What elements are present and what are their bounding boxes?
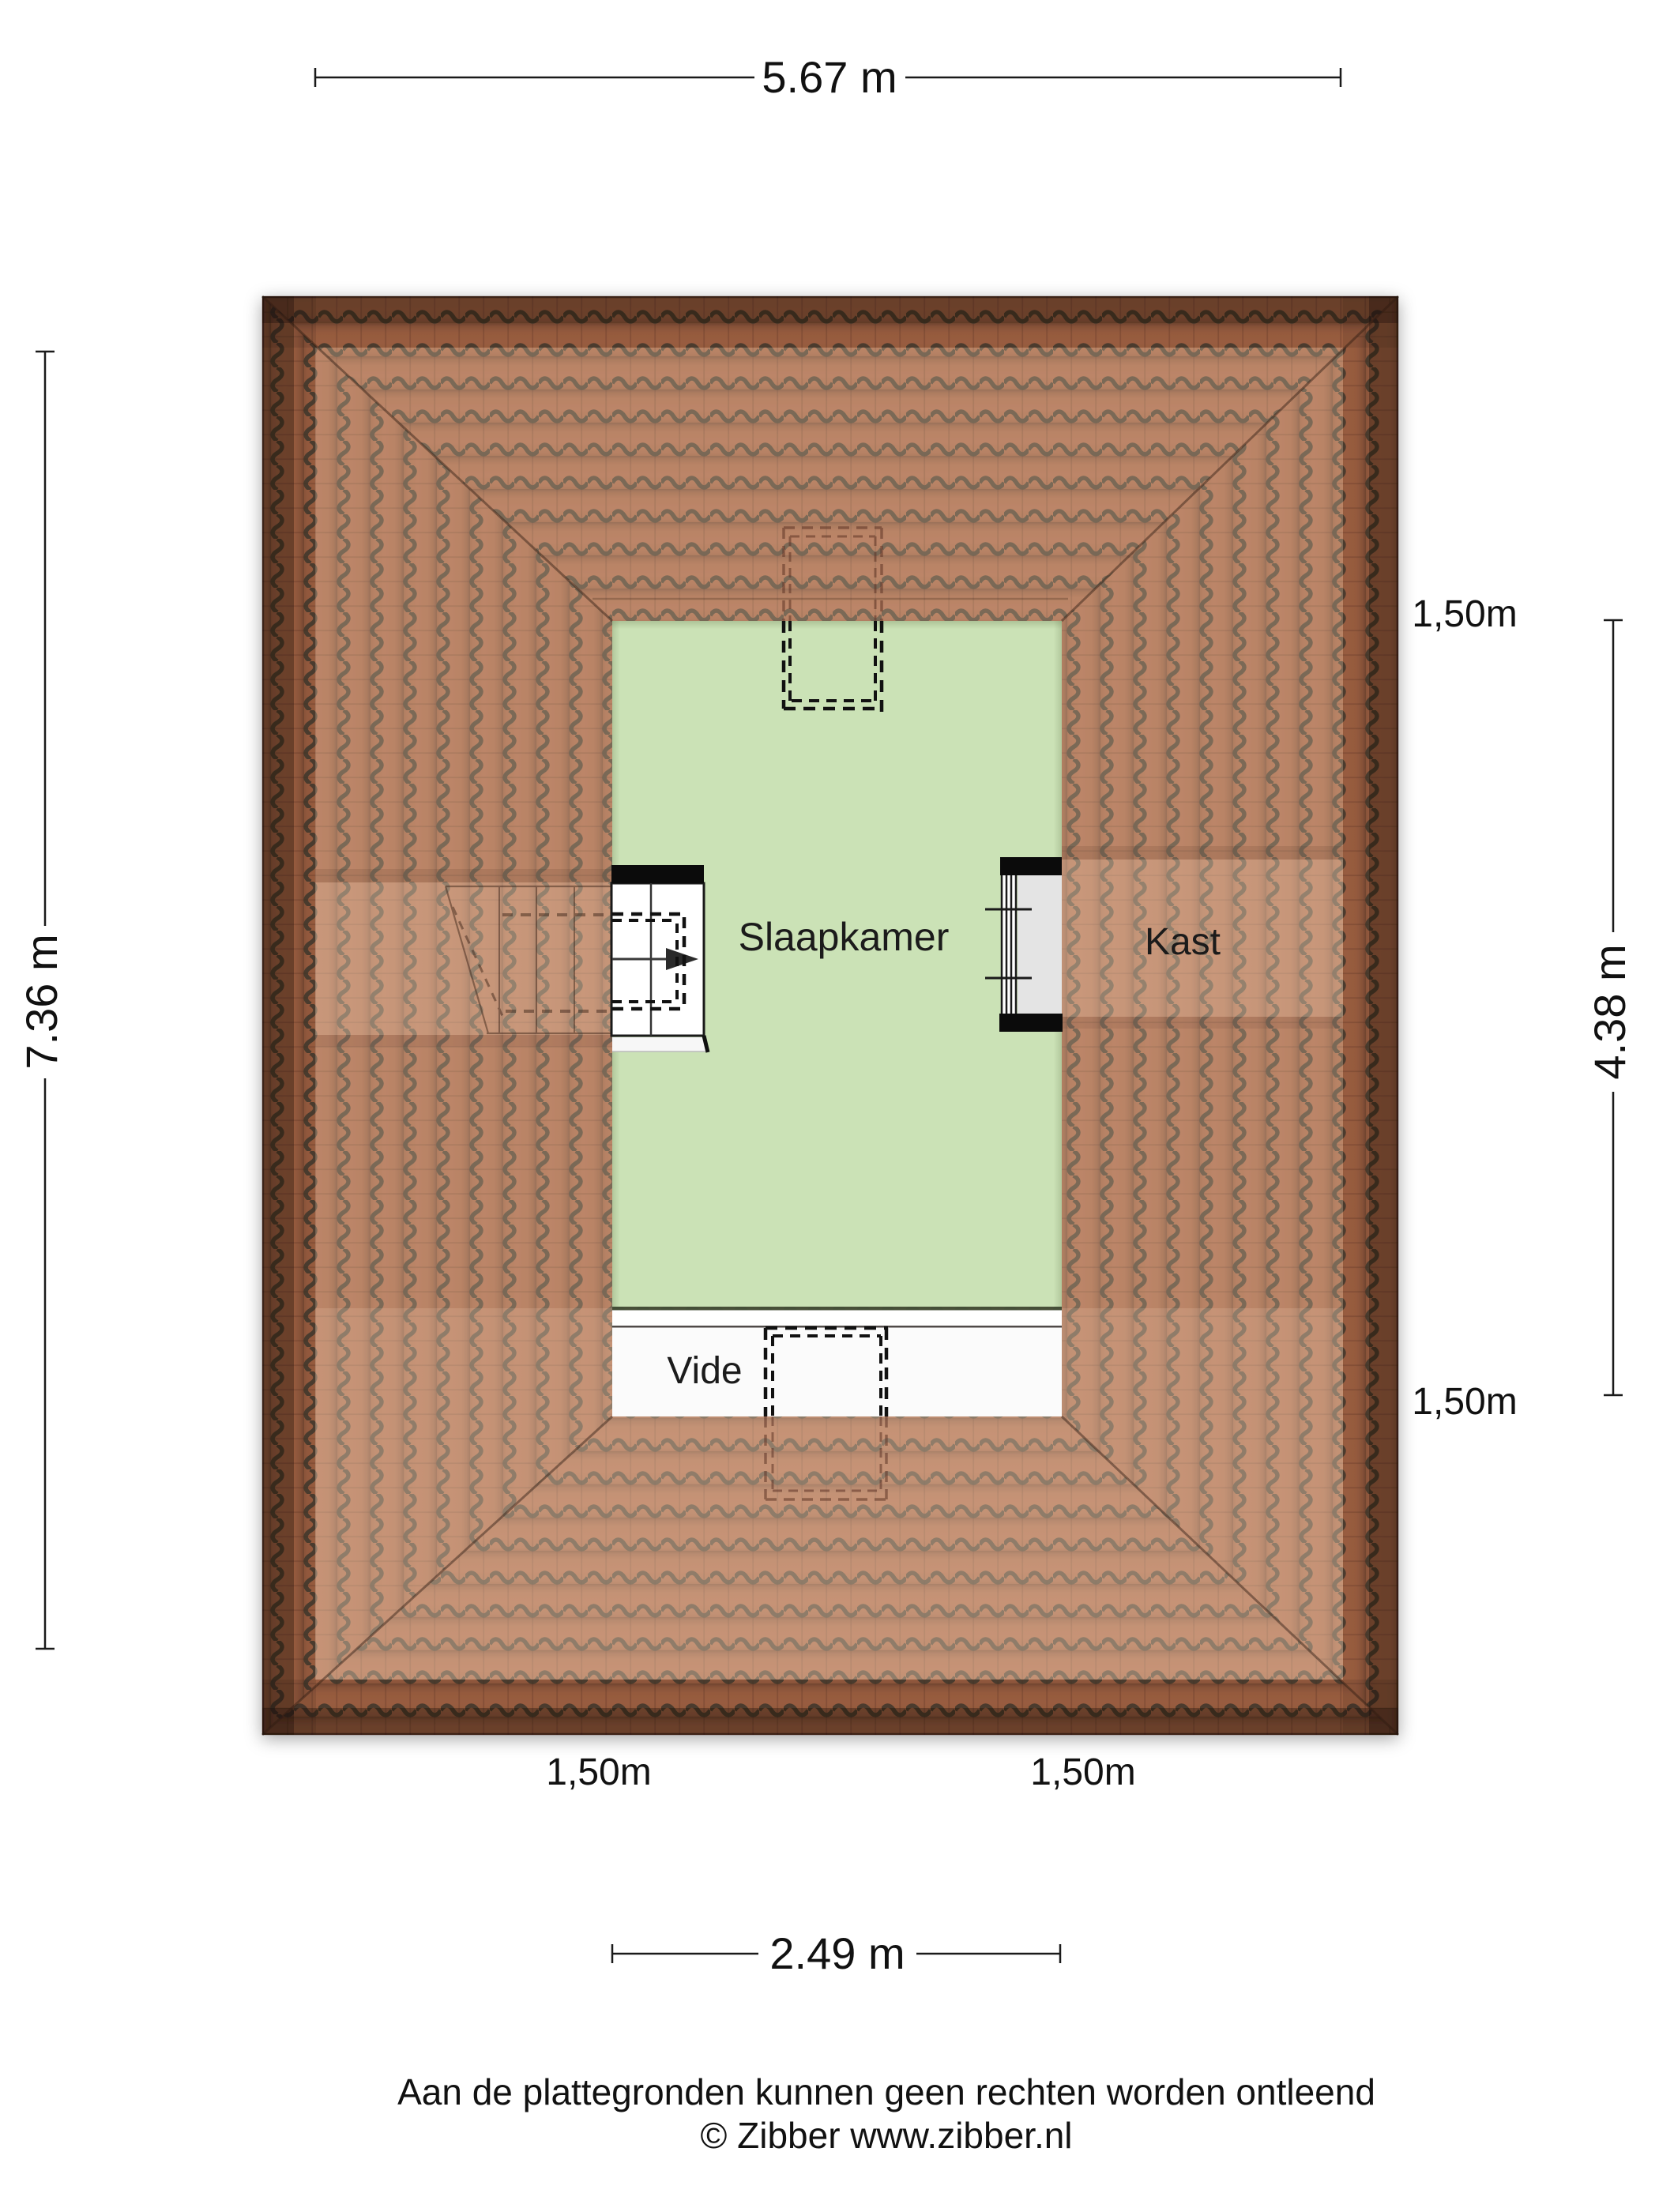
svg-text:Aan de plattegronden kunnen ge: Aan de plattegronden kunnen geen rechten… xyxy=(397,2071,1375,2112)
svg-text:1,50m: 1,50m xyxy=(1030,1751,1135,1793)
svg-text:Kast: Kast xyxy=(1145,921,1221,963)
svg-text:© Zibber www.zibber.nl: © Zibber www.zibber.nl xyxy=(700,2115,1072,2156)
svg-text:5.67 m: 5.67 m xyxy=(762,52,897,102)
svg-text:1,50m: 1,50m xyxy=(1412,593,1517,635)
svg-text:2.49 m: 2.49 m xyxy=(769,1928,905,1978)
svg-text:1,50m: 1,50m xyxy=(546,1751,651,1793)
svg-text:1,50m: 1,50m xyxy=(1412,1381,1517,1423)
svg-text:7.36 m: 7.36 m xyxy=(17,934,66,1069)
svg-text:4.38 m: 4.38 m xyxy=(1585,944,1635,1079)
svg-text:Vide: Vide xyxy=(667,1350,742,1392)
svg-text:Slaapkamer: Slaapkamer xyxy=(739,915,950,959)
